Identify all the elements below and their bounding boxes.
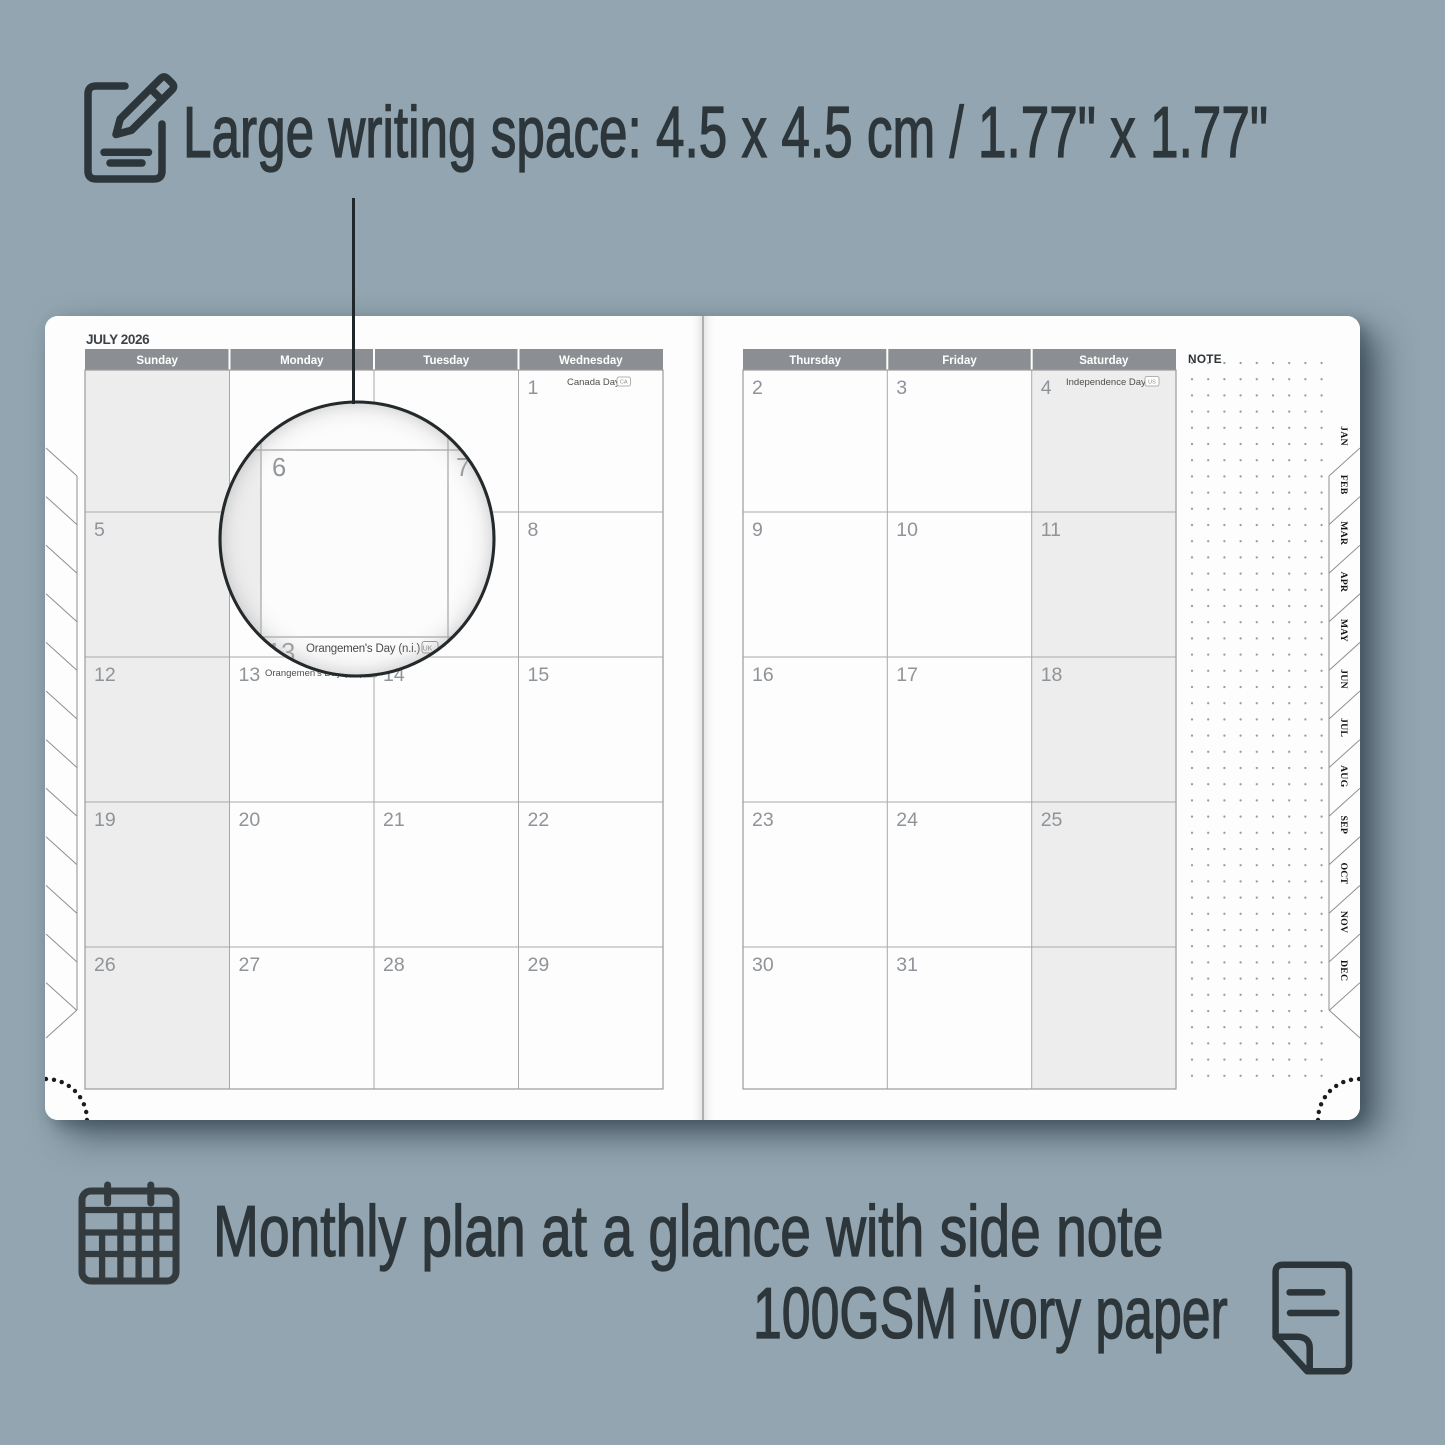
svg-text:Canada Day: Canada Day [567,377,620,388]
svg-text:5: 5 [94,519,105,541]
svg-text:21: 21 [383,809,405,831]
svg-text:Friday: Friday [942,355,977,367]
svg-text:15: 15 [528,664,550,686]
svg-text:JUL: JUL [1338,718,1349,737]
svg-text:Saturday: Saturday [1079,355,1129,367]
svg-text:24: 24 [896,809,918,831]
svg-text:DEC: DEC [1338,960,1349,981]
svg-text:11: 11 [1041,519,1061,541]
svg-text:NOV: NOV [1338,911,1349,933]
svg-text:US: US [1148,380,1156,386]
svg-text:26: 26 [94,954,116,976]
svg-text:FEB: FEB [1338,475,1349,495]
svg-text:29: 29 [528,954,550,976]
svg-text:19: 19 [94,809,116,831]
svg-text:OCT: OCT [1338,862,1349,884]
svg-text:MAR: MAR [1338,521,1349,546]
svg-text:22: 22 [528,809,550,831]
svg-text:2: 2 [752,377,763,399]
svg-text:27: 27 [239,954,261,976]
svg-text:23: 23 [752,809,774,831]
svg-text:8: 8 [528,519,539,541]
svg-text:31: 31 [896,954,918,976]
svg-text:JUN: JUN [1338,669,1349,689]
svg-text:Independence Day: Independence Day [1066,377,1146,388]
svg-text:3: 3 [896,377,907,399]
svg-text:17: 17 [896,664,918,686]
svg-text:28: 28 [383,954,405,976]
svg-text:25: 25 [1041,809,1063,831]
svg-text:NOTE: NOTE [1188,352,1222,366]
svg-text:Tuesday: Tuesday [423,355,469,367]
svg-text:APR: APR [1338,571,1349,592]
svg-text:30: 30 [752,954,774,976]
svg-text:20: 20 [239,809,261,831]
svg-text:JAN: JAN [1338,426,1349,446]
svg-text:10: 10 [896,519,918,541]
svg-text:16: 16 [752,664,774,686]
svg-text:Thursday: Thursday [789,355,841,367]
svg-text:AUG: AUG [1338,765,1349,788]
svg-text:Wednesday: Wednesday [559,355,623,367]
svg-text:JULY 2026: JULY 2026 [86,332,150,347]
svg-text:9: 9 [752,519,763,541]
svg-text:Sunday: Sunday [136,355,178,367]
svg-text:4: 4 [1041,377,1052,399]
svg-text:13: 13 [239,664,261,686]
svg-text:12: 12 [94,664,116,686]
svg-text:CA: CA [620,380,628,386]
svg-text:Monday: Monday [280,355,324,367]
svg-text:1: 1 [528,377,539,399]
svg-text:SEP: SEP [1338,816,1349,835]
svg-text:18: 18 [1041,664,1063,686]
svg-text:MAY: MAY [1338,619,1349,642]
